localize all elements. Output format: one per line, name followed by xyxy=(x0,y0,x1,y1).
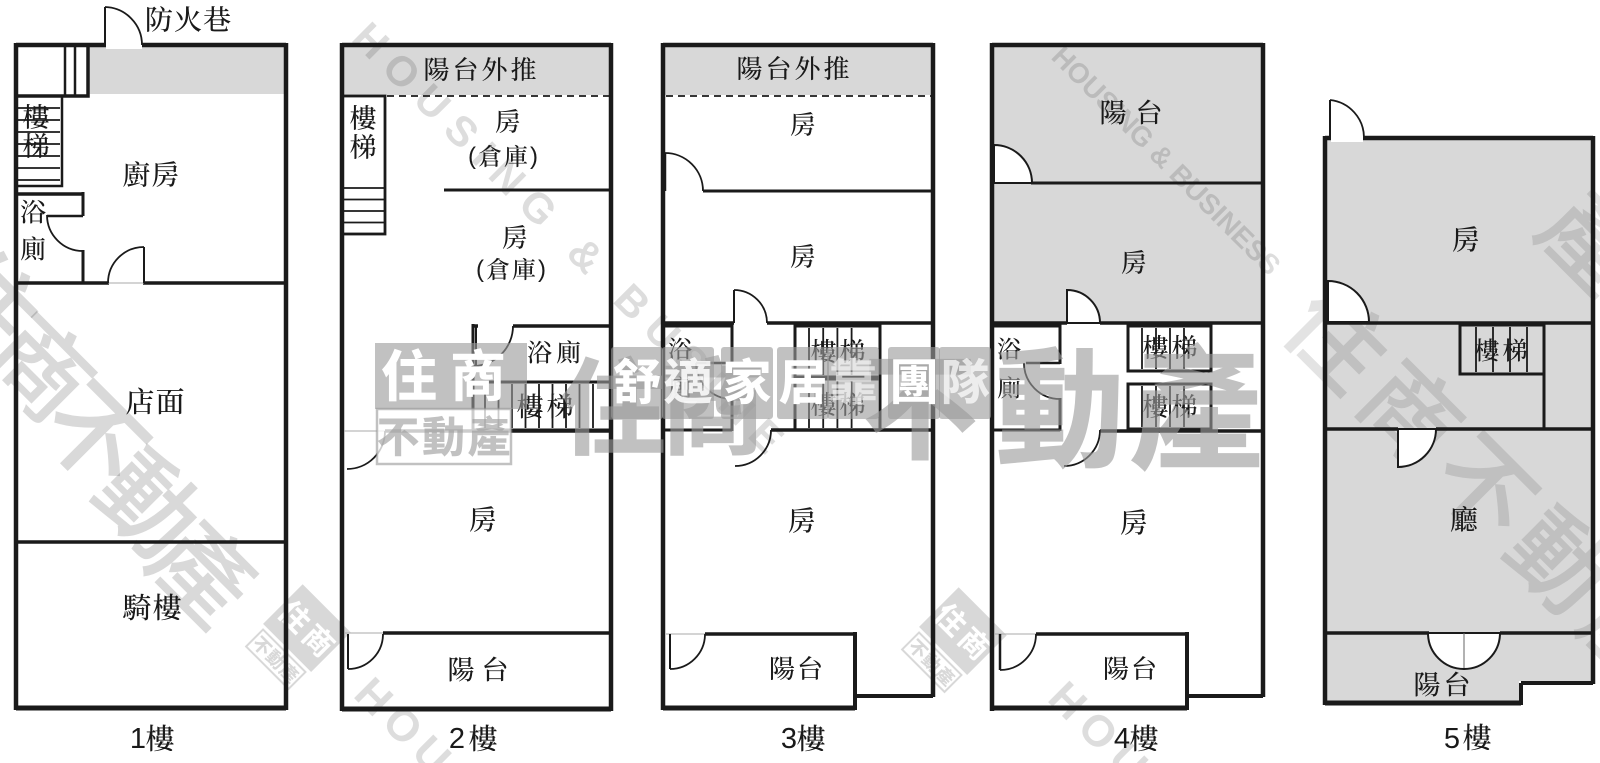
svg-text:5: 5 xyxy=(1444,723,1460,755)
svg-text:(: ( xyxy=(476,256,484,283)
svg-text:2: 2 xyxy=(449,723,465,755)
svg-text:4: 4 xyxy=(1114,723,1130,755)
svg-text:1: 1 xyxy=(130,723,146,755)
svg-text:): ) xyxy=(530,143,538,170)
svg-text:): ) xyxy=(538,256,546,283)
svg-text:(: ( xyxy=(468,143,476,170)
svg-text:3: 3 xyxy=(781,723,797,755)
